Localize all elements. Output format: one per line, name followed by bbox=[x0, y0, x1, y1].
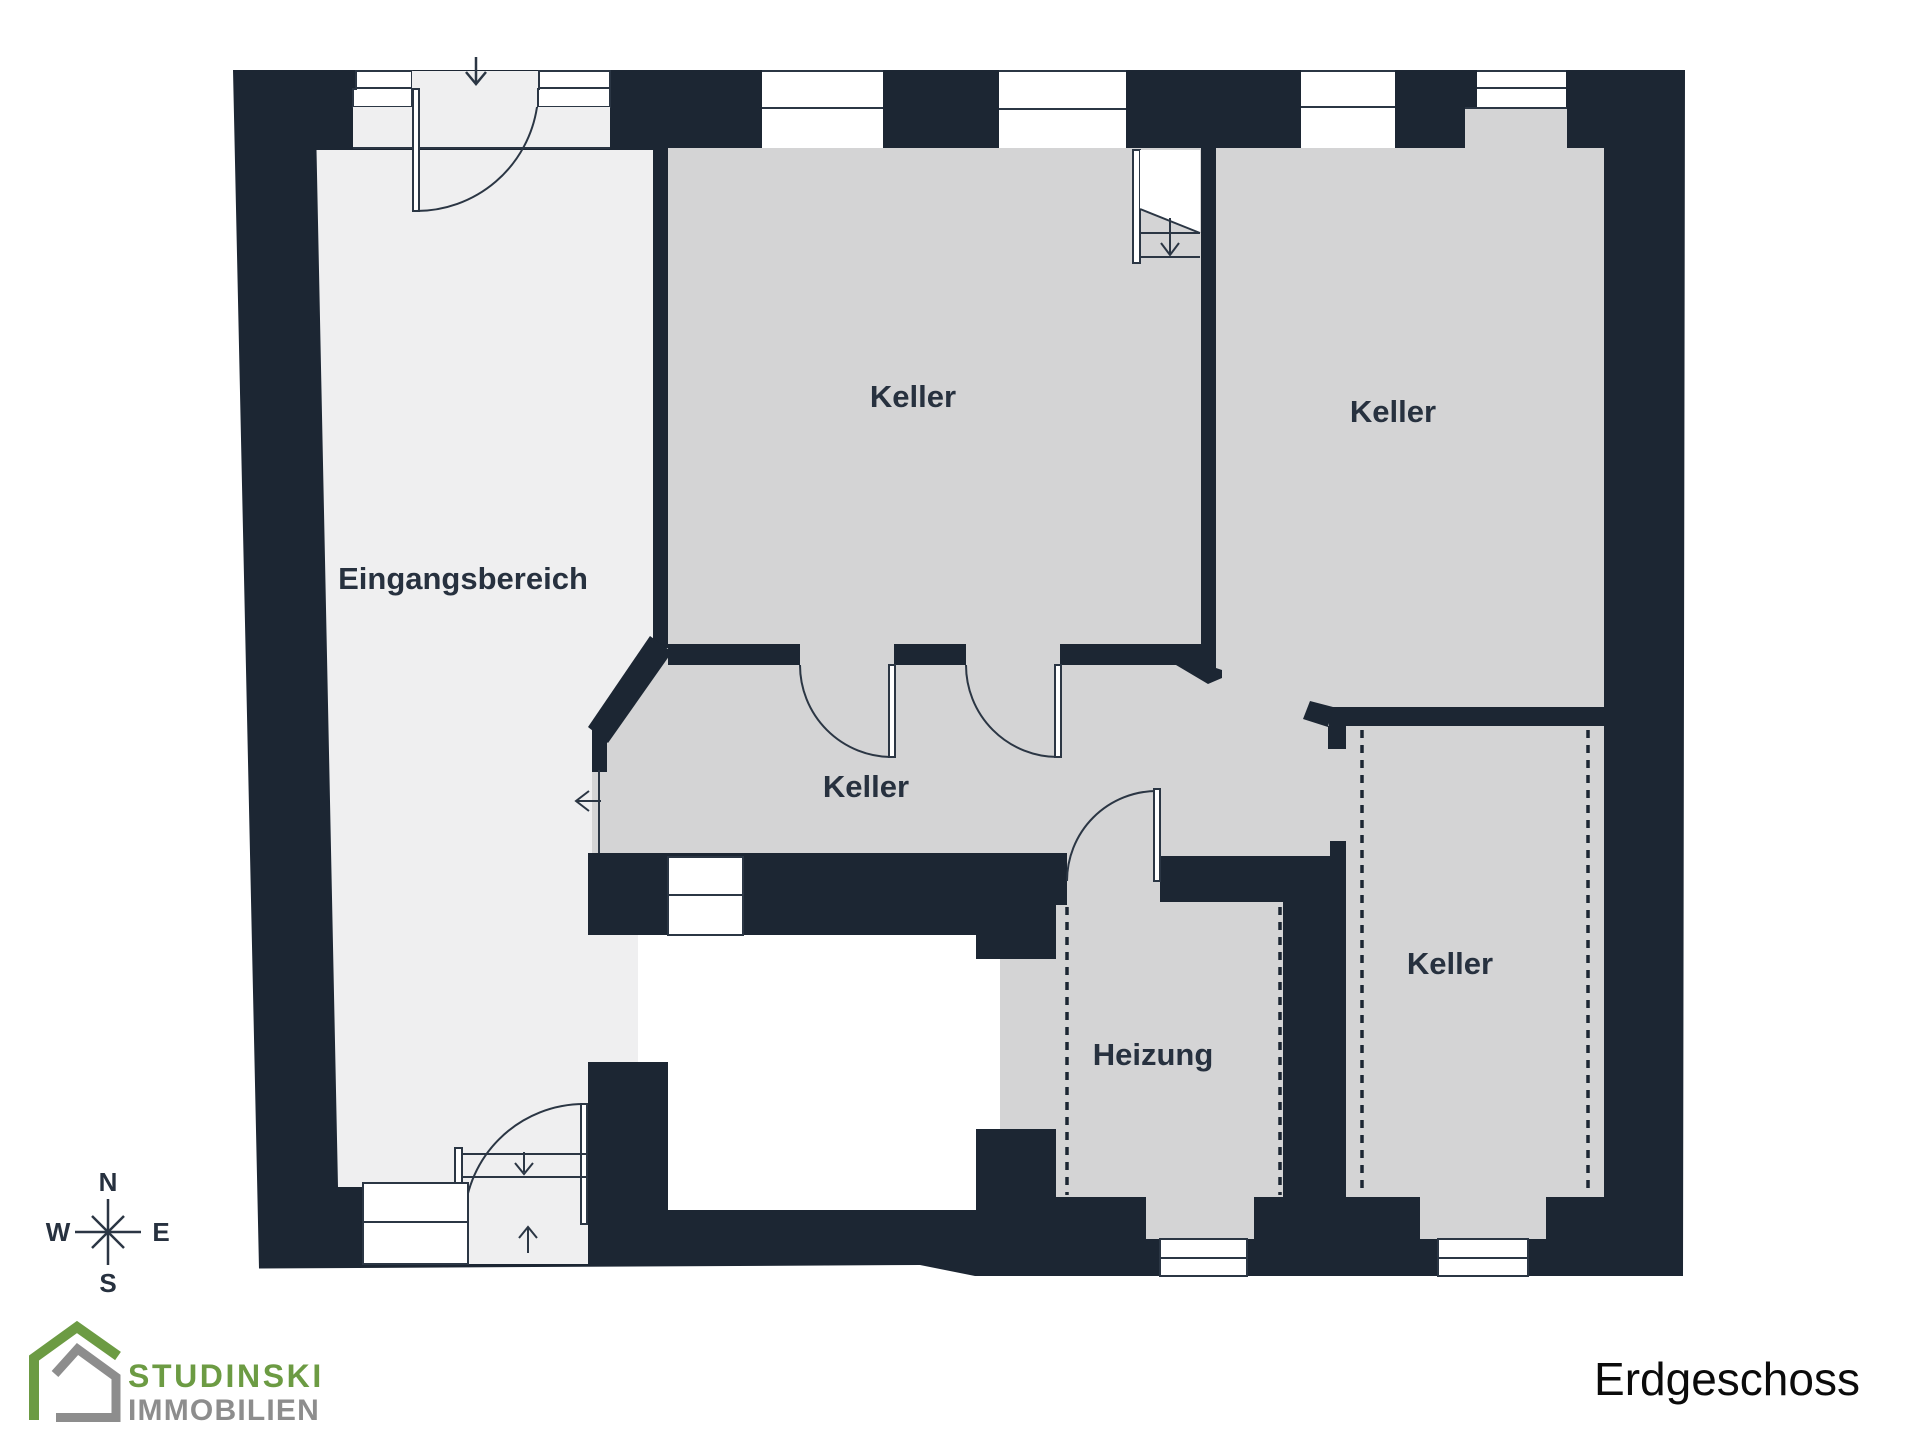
svg-text:Keller: Keller bbox=[870, 379, 956, 414]
svg-text:W: W bbox=[46, 1217, 71, 1247]
svg-text:Keller: Keller bbox=[823, 769, 909, 804]
svg-text:Erdgeschoss: Erdgeschoss bbox=[1594, 1353, 1860, 1405]
svg-text:IMMOBILIEN: IMMOBILIEN bbox=[128, 1394, 320, 1427]
svg-text:Keller: Keller bbox=[1350, 394, 1436, 429]
svg-text:Keller: Keller bbox=[1407, 946, 1493, 981]
svg-text:E: E bbox=[152, 1217, 169, 1247]
svg-text:Heizung: Heizung bbox=[1093, 1037, 1214, 1072]
svg-text:STUDINSKI: STUDINSKI bbox=[128, 1358, 324, 1394]
svg-text:S: S bbox=[99, 1268, 116, 1298]
svg-text:Eingangsbereich: Eingangsbereich bbox=[338, 561, 588, 596]
svg-text:N: N bbox=[99, 1167, 118, 1197]
